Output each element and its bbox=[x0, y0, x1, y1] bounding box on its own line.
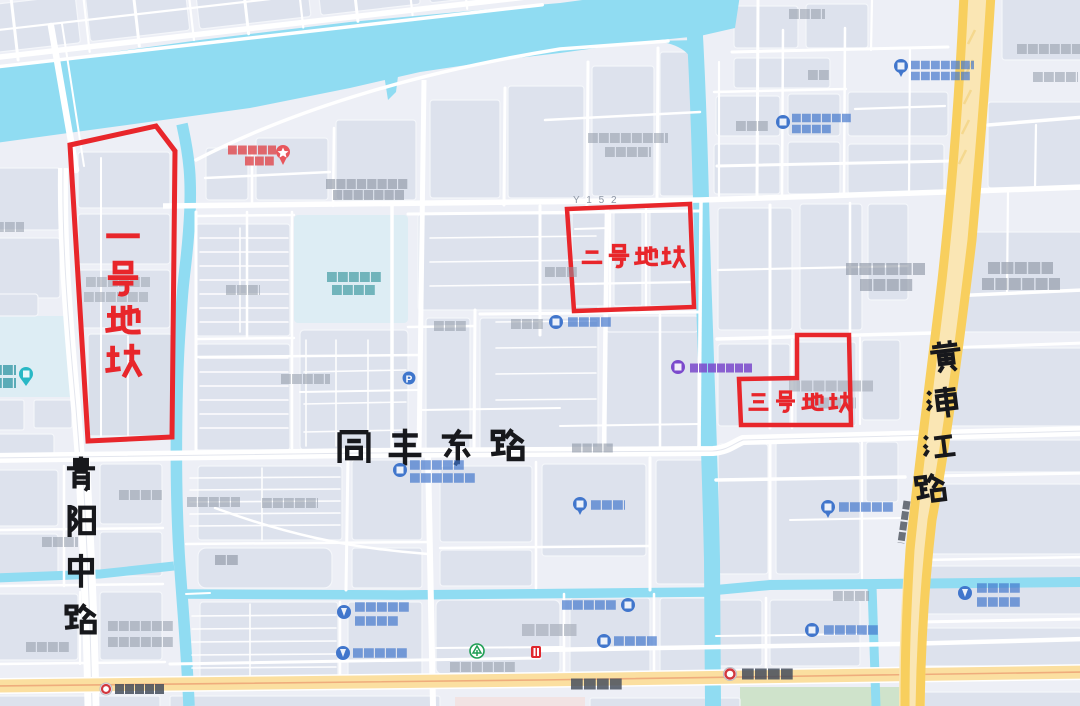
svg-text:Y 1 5 2: Y 1 5 2 bbox=[573, 195, 619, 206]
svg-text:P: P bbox=[406, 375, 413, 386]
